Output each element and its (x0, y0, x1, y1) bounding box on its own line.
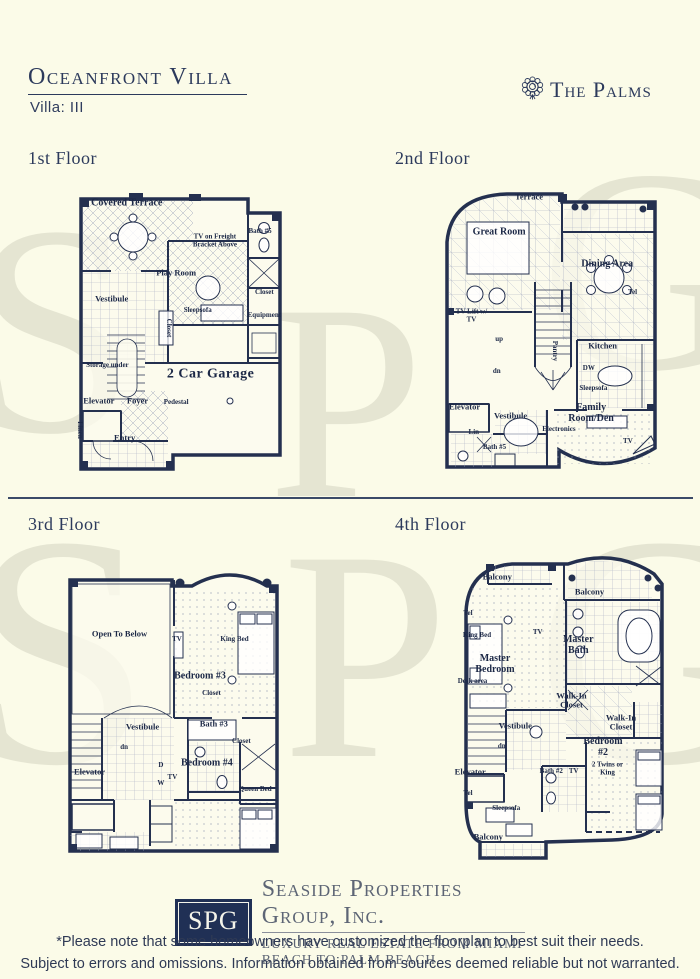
disclaimer-line-1: *Please note that some homeowners have c… (0, 932, 700, 954)
heading-3rd-floor: 3rd Floor (28, 514, 100, 535)
room-label: Lin (469, 429, 480, 437)
room-label: up (495, 336, 503, 344)
room-label: Walk-In Closet (549, 691, 594, 710)
room-label: TV (569, 768, 579, 776)
room-label: Bedroom #3 (172, 671, 227, 682)
disclaimer: *Please note that some homeowners have c… (0, 932, 700, 976)
heading-2nd-floor: 2nd Floor (395, 148, 470, 169)
disclaimer-line-2: Subject to errors and omissions. Informa… (0, 954, 700, 976)
room-label: DW (583, 365, 595, 373)
room-label: TV (623, 438, 633, 446)
room-label: Open To Below (90, 629, 150, 638)
the-palms-brand: The Palms (519, 74, 652, 106)
room-label: Elevator (83, 396, 114, 405)
room-label: Vestibule (494, 411, 527, 420)
room-label: Master Bedroom (466, 653, 525, 675)
room-label: Queen Bed (237, 786, 274, 794)
room-label: TV (172, 636, 182, 644)
room-label: Tel (463, 610, 472, 618)
heading-1st-floor: 1st Floor (28, 148, 97, 169)
room-label: Kitchen (588, 341, 617, 350)
room-label: Vestibule (126, 722, 159, 731)
room-label: Tel (463, 790, 472, 798)
room-label: Foyer (127, 396, 148, 405)
room-label: Bath #2 (537, 768, 566, 776)
floorplan-1st-floor: Covered TerracePlay RoomTV on Freight Br… (73, 183, 288, 473)
room-label: Sleepsofa (184, 307, 212, 315)
room-label: Balcony (483, 572, 512, 581)
room-label: Pedestal (164, 400, 189, 408)
room-label: Bath #3 (200, 719, 228, 728)
room-label: Pantry (550, 341, 558, 362)
room-label: Balcony (474, 833, 503, 842)
floorplan-2nd-floor: TerraceGreat RoomDining AreaTelTV Lift w… (437, 182, 667, 474)
room-label: TV (168, 774, 178, 782)
room-label: Dining Area (580, 258, 635, 269)
room-label: W (157, 780, 164, 788)
room-label: 2 Car Garage (167, 367, 254, 382)
room-label: Electronics (542, 426, 575, 434)
room-label: Entry (114, 434, 135, 443)
section-divider (8, 497, 693, 499)
room-label: Sleepsofa (492, 805, 520, 813)
room-label: TV (533, 629, 543, 637)
room-label: Elevator (455, 767, 486, 776)
room-label: dn (498, 743, 506, 751)
room-label: Walk-In Closet (601, 713, 642, 732)
room-label: Bath #5 (483, 444, 506, 452)
room-label: Vestibule (499, 721, 532, 730)
page-title: Oceanfront Villa (28, 64, 247, 95)
room-label: Master Bath (556, 634, 601, 656)
floorplan-4th-floor: BalconyBalconyTelKing BedTVMaster BathMa… (450, 552, 675, 862)
room-label: Linen (76, 421, 84, 439)
room-label: Elevator (449, 402, 480, 411)
company-name: Seaside Properties Group, Inc. (262, 876, 525, 933)
room-label: 2 Twins or King (587, 761, 628, 776)
room-label: Desk area (455, 678, 491, 686)
room-label: Equipment (248, 313, 281, 321)
room-label: Closet (255, 289, 274, 297)
room-label: Bath #5 (239, 228, 282, 236)
watermark-letter: P (282, 535, 449, 775)
room-label: Bedroom #4 (179, 758, 234, 769)
room-label: Family Room/Den (559, 402, 623, 424)
rosette-icon (519, 74, 546, 106)
room-label: Storage under (84, 362, 131, 370)
room-label: Vestibule (95, 294, 128, 303)
room-label: TV Lift w/ TV (451, 309, 492, 324)
room-label: dn (493, 368, 501, 376)
floorplan-3rd-floor: Open To BelowTVKing BedBedroom #3ClosetB… (62, 556, 292, 856)
room-label: Closet (232, 738, 251, 746)
room-label: Bedroom #2 (578, 736, 628, 758)
villa-number: Villa: III (30, 99, 84, 116)
brand-name: The Palms (550, 77, 652, 103)
room-label: King Bed (218, 636, 250, 644)
watermark-letter: P (268, 290, 424, 514)
room-label: Covered Terrace (90, 198, 163, 209)
room-label: Elevator (74, 767, 105, 776)
floorplan-flyer: { "page": {"background": "#fbfbe8", "ink… (0, 0, 700, 979)
room-label: Closet (164, 319, 172, 338)
room-label: Balcony (575, 588, 604, 597)
room-label: TV on Freight Bracket Above (187, 233, 243, 248)
room-label: Tel (628, 289, 637, 297)
room-label: Play Room (156, 268, 196, 277)
room-label: Sleepsofa (579, 385, 607, 393)
room-label: Terrace (515, 192, 543, 201)
room-label: Great Room (467, 226, 531, 237)
heading-4th-floor: 4th Floor (395, 514, 466, 535)
room-label: D (158, 762, 163, 770)
room-label: King Bed (462, 632, 491, 640)
room-label: dn (120, 744, 128, 752)
floorplan-3rd-floor-drawing (62, 556, 292, 856)
room-label: Closet (202, 690, 221, 698)
